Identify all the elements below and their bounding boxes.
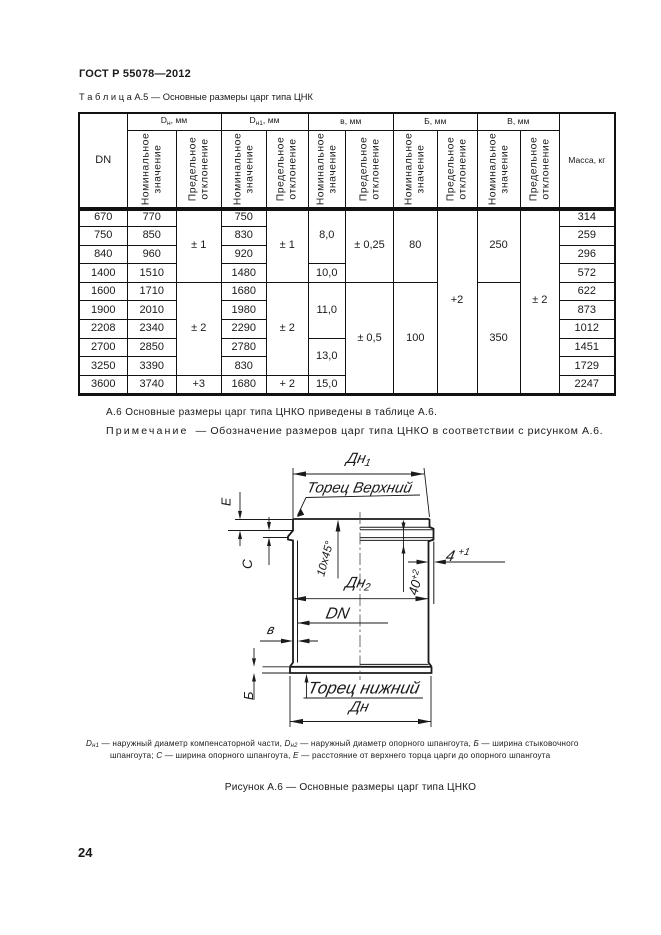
svg-text:Дн1: Дн1	[343, 450, 374, 469]
svg-text:С: С	[240, 559, 255, 569]
svg-text:40+2: 40+2	[405, 568, 427, 596]
svg-text:DN: DN	[324, 605, 351, 623]
svg-text:Дн2: Дн2	[342, 575, 373, 594]
svg-text:Дн: Дн	[346, 699, 371, 716]
svg-text:Е: Е	[220, 497, 234, 506]
svg-text:10x45°: 10x45°	[315, 540, 336, 578]
svg-text:в: в	[266, 622, 276, 637]
svg-text:Б: Б	[241, 691, 256, 700]
svg-text:Торец нижний: Торец нижний	[306, 678, 422, 698]
svg-text:Торец Верхний: Торец Верхний	[305, 480, 414, 497]
